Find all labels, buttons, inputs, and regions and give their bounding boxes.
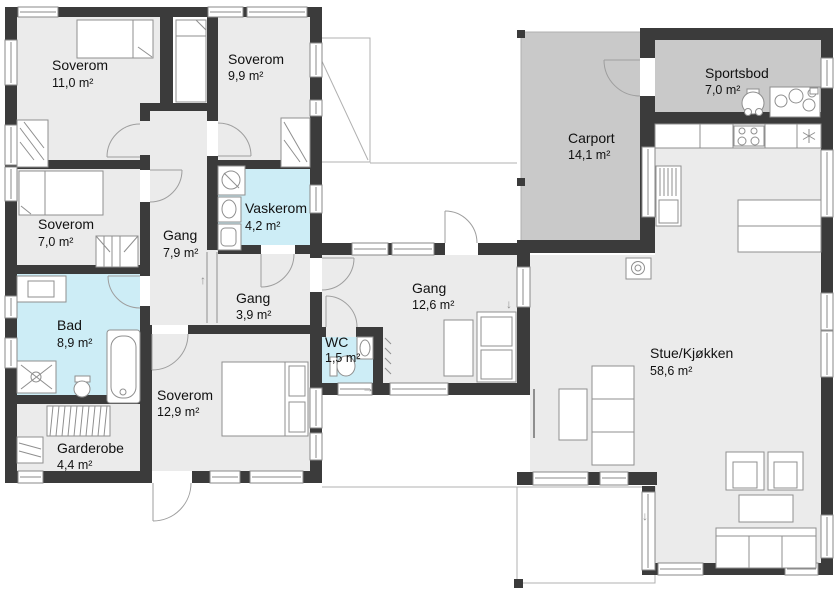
- wall: [640, 28, 833, 40]
- wall: [140, 103, 218, 111]
- door-gap: [310, 258, 322, 292]
- laundry-unit: [218, 224, 241, 250]
- bed: [77, 20, 153, 58]
- room-area-garderobe: 4,4 m²: [57, 458, 92, 472]
- armchair: [726, 452, 764, 490]
- room-area-gang-39: 3,9 m²: [236, 308, 271, 322]
- direction-arrow-icon: ↓: [642, 509, 648, 523]
- direction-arrow-icon: ↓: [506, 297, 512, 311]
- wall: [140, 103, 150, 121]
- room-area-bad: 8,9 m²: [57, 336, 92, 350]
- room-area-wc: 1,5 m²: [325, 351, 360, 365]
- cabinet: [477, 312, 516, 382]
- side-table: [559, 389, 587, 440]
- room-name-garderobe: Garderobe: [57, 440, 124, 456]
- wall: [140, 155, 150, 170]
- sofa: [716, 528, 816, 568]
- shower: [17, 361, 56, 393]
- bench: [444, 320, 473, 376]
- wall: [517, 240, 655, 253]
- room-name-gang-126: Gang: [412, 280, 446, 296]
- room-name-gang-39: Gang: [236, 290, 270, 306]
- wardrobe: [17, 120, 48, 167]
- floor-plan-page: ↑ → ↓ ↓ Soverom 11,0 m² Soverom 9,9 m² S…: [0, 0, 838, 591]
- tall-cabinet: [656, 166, 681, 226]
- room-area-stue: 58,6 m²: [650, 364, 692, 378]
- wall: [517, 243, 530, 395]
- closet: [176, 20, 206, 102]
- room-name-soverom-70: Soverom: [38, 216, 94, 232]
- door-arc: [153, 483, 191, 521]
- room-name-carport: Carport: [568, 130, 615, 146]
- floor-plan-canvas: ↑ → ↓ ↓ Soverom 11,0 m² Soverom 9,9 m² S…: [0, 0, 838, 591]
- room-name-vaskerom: Vaskerom: [245, 200, 307, 216]
- wall: [188, 325, 322, 334]
- room-name-stue: Stue/Kjøkken: [650, 345, 733, 361]
- room-name-sportsbod: Sportsbod: [705, 65, 769, 81]
- door-gap: [152, 471, 192, 483]
- passage-floor: [207, 250, 218, 325]
- room-area-carport: 14,1 m²: [568, 148, 610, 162]
- room-area-gang-126: 12,6 m²: [412, 298, 454, 312]
- wardrobe: [96, 236, 138, 267]
- bathtub: [107, 330, 140, 403]
- room-name-soverom-129: Soverom: [157, 387, 213, 403]
- washing-machine: [218, 166, 245, 195]
- wall: [140, 325, 152, 334]
- armchair: [768, 452, 803, 490]
- double-bed: [222, 362, 308, 436]
- terrace-outline: [517, 487, 655, 583]
- fireplace: [626, 258, 651, 279]
- room-name-bad: Bad: [57, 317, 82, 333]
- direction-arrow-icon: ↑: [200, 273, 206, 287]
- room-area-vaskerom: 4,2 m²: [245, 219, 280, 233]
- wardrobe: [281, 118, 310, 167]
- appliance-unit: [770, 87, 820, 117]
- room-name-soverom-99: Soverom: [228, 51, 284, 67]
- door-arc: [445, 211, 477, 243]
- room-area-sportsbod: 7,0 m²: [705, 83, 740, 97]
- room-area-gang-79: 7,9 m²: [163, 246, 198, 260]
- room-floor-gang-79: [150, 111, 207, 325]
- bathroom-sink: [17, 276, 66, 302]
- wall: [140, 333, 152, 471]
- direction-arrow-icon: →: [362, 381, 374, 395]
- room-name-gang-79: Gang: [163, 227, 197, 243]
- kitchen-island: [738, 200, 821, 252]
- terrace-post: [514, 579, 523, 588]
- room-area-soverom-11: 11,0 m²: [52, 76, 93, 90]
- fridge: [797, 124, 821, 148]
- carport-post: [517, 30, 525, 38]
- wall: [207, 156, 218, 250]
- carport-post: [517, 178, 525, 186]
- room-area-soverom-70: 7,0 m²: [38, 235, 73, 249]
- coffee-table: [739, 495, 793, 522]
- room-area-soverom-129: 12,9 m²: [157, 405, 199, 419]
- door-gap: [640, 58, 655, 96]
- chaise-sofa: [592, 366, 634, 465]
- door-gap: [445, 243, 478, 255]
- wall: [160, 7, 173, 111]
- wall: [140, 202, 150, 276]
- room-area-soverom-99: 9,9 m²: [228, 69, 263, 83]
- room-name-wc: WC: [325, 334, 348, 350]
- bed: [19, 171, 103, 215]
- cooktop: [734, 126, 764, 146]
- room-name-soverom-11: Soverom: [52, 57, 108, 73]
- laundry-sink: [218, 197, 241, 222]
- toilet: [74, 376, 90, 397]
